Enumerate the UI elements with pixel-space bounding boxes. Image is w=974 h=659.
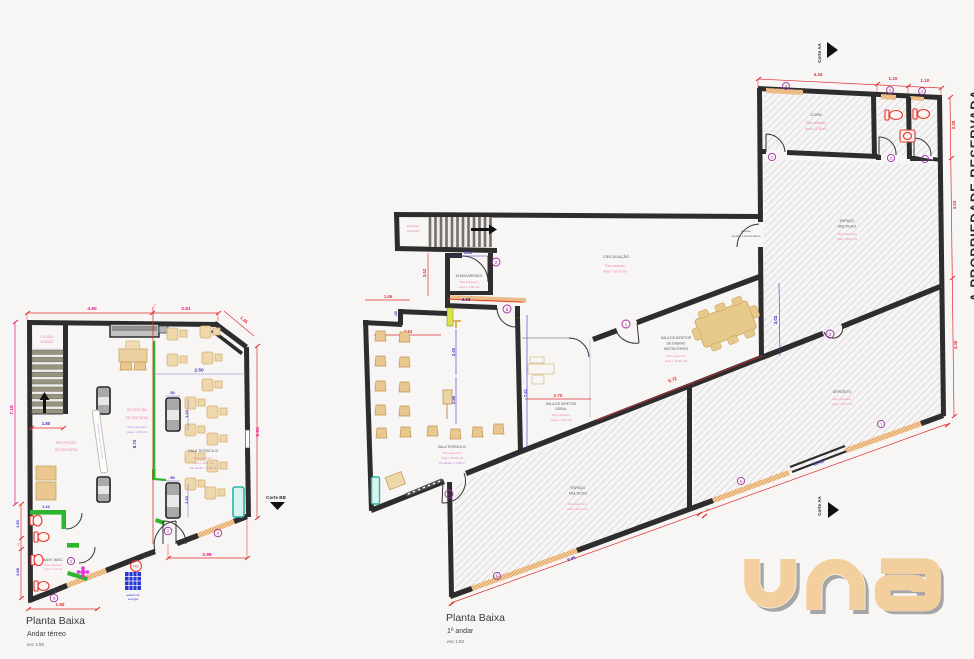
svg-text:.50: .50	[169, 475, 175, 480]
svg-text:CIRCULAÇÃO: CIRCULAÇÃO	[603, 254, 629, 259]
svg-text:Piso ceramico: Piso ceramico	[605, 264, 625, 268]
svg-text:2.36: 2.36	[951, 120, 956, 129]
svg-text:Pe direito = 2.80 m: Pe direito = 2.80 m	[190, 466, 216, 470]
svg-text:MULTIUSO: MULTIUSO	[569, 492, 588, 496]
svg-text:Area = 14.80 m2: Area = 14.80 m2	[665, 359, 688, 363]
svg-text:Piso ceramico: Piso ceramico	[568, 502, 587, 506]
svg-text:Area = 52.3 m2: Area = 52.3 m2	[567, 507, 588, 511]
svg-text:1.80: 1.80	[42, 421, 51, 426]
svg-text:RECEPÇÃO: RECEPÇÃO	[127, 407, 147, 412]
svg-text:Planta Baixa: Planta Baixa	[446, 612, 505, 624]
svg-text:energia: energia	[128, 597, 138, 601]
svg-text:Pe direito = 2.80 m: Pe direito = 2.80 m	[439, 461, 465, 465]
svg-text:4.33: 4.33	[814, 72, 823, 77]
svg-text:A PROPRIEDADE RESERVADA: A PROPRIEDADE RESERVADA	[968, 89, 974, 302]
svg-text:MULTIUSO: MULTIUSO	[838, 225, 857, 229]
svg-text:SALA TEÓRICA IV: SALA TEÓRICA IV	[438, 444, 467, 449]
svg-text:Piso ceramico: Piso ceramico	[838, 232, 857, 236]
svg-text:7.18: 7.18	[9, 405, 15, 415]
svg-text:Area = 30.2 m2: Area = 30.2 m2	[193, 461, 214, 465]
svg-text:Area = 26.60 m2: Area = 26.60 m2	[441, 456, 464, 460]
svg-text:RECEPÇÃO: RECEPÇÃO	[56, 440, 76, 445]
svg-text:3.03: 3.03	[952, 200, 957, 209]
svg-text:4.90: 4.90	[87, 306, 97, 312]
svg-text:Area = 48.6 m2: Area = 48.6 m2	[127, 430, 148, 434]
svg-text:1.40: 1.40	[464, 250, 473, 255]
svg-text:7.41: 7.41	[523, 388, 528, 397]
svg-text:.28: .28	[393, 310, 398, 316]
svg-text:Area = 48.6 m2: Area = 48.6 m2	[837, 237, 858, 241]
svg-text:1º andar: 1º andar	[447, 628, 474, 635]
svg-text:restrito a funcionarios: restrito a funcionarios	[732, 234, 761, 238]
svg-text:4.46: 4.46	[953, 340, 958, 349]
svg-text:1.20: 1.20	[184, 409, 189, 418]
svg-text:ACESSO: ACESSO	[407, 229, 420, 233]
svg-text:2.50: 2.50	[194, 368, 204, 374]
svg-text:Piso ceramico: Piso ceramico	[806, 121, 826, 125]
svg-text:esc 1:50: esc 1:50	[447, 639, 465, 644]
svg-text:ESCADA: ESCADA	[40, 335, 54, 339]
svg-text:Piso ceramico: Piso ceramico	[552, 413, 571, 417]
svg-text:2.51: 2.51	[181, 306, 191, 312]
svg-text:Area = 32.10 m2: Area = 32.10 m2	[603, 270, 627, 274]
svg-text:8.72: 8.72	[132, 439, 137, 448]
svg-text:Piso ceramico: Piso ceramico	[194, 456, 213, 460]
svg-text:ALMOXARIFADO: ALMOXARIFADO	[456, 274, 483, 278]
svg-text:2.40: 2.40	[451, 347, 456, 356]
svg-text:9: 9	[889, 89, 891, 93]
svg-text:1.20: 1.20	[42, 505, 49, 509]
svg-text:BANH. MASC: BANH. MASC	[43, 558, 64, 562]
svg-text:ESCADA: ESCADA	[407, 224, 419, 228]
svg-text:Corte AA: Corte AA	[817, 495, 822, 515]
svg-text:Area = 7.05 m2: Area = 7.05 m2	[551, 418, 572, 422]
svg-text:SALA DE DIRETOR: SALA DE DIRETOR	[661, 336, 692, 340]
svg-text:Area = 3.80 m2: Area = 3.80 m2	[459, 285, 480, 289]
svg-text:ESPAÇO: ESPAÇO	[840, 219, 855, 223]
svg-text:Piso ceramico: Piso ceramico	[460, 280, 479, 284]
svg-text:4.33: 4.33	[462, 297, 471, 302]
svg-text:Acesso: Acesso	[741, 229, 751, 233]
svg-text:Area = 28.4 m2: Area = 28.4 m2	[832, 402, 853, 406]
svg-text:DEPÓSITO: DEPÓSITO	[833, 389, 852, 394]
svg-text:INSTRUTORES: INSTRUTORES	[664, 347, 689, 351]
svg-text:ACESSO: ACESSO	[40, 340, 54, 344]
svg-text:Piso ceramico: Piso ceramico	[833, 397, 852, 401]
svg-text:SALA DE DIRETOR: SALA DE DIRETOR	[546, 402, 577, 406]
svg-text:Andar térreo: Andar térreo	[27, 631, 66, 638]
svg-text:Piso ceramico: Piso ceramico	[128, 425, 147, 429]
svg-text:DE ENSINO: DE ENSINO	[667, 342, 686, 346]
svg-text:1.46: 1.46	[384, 294, 393, 299]
svg-text:.50: .50	[169, 390, 175, 395]
svg-text:6.54: 6.54	[255, 427, 261, 437]
svg-text:9: 9	[785, 85, 787, 89]
svg-text:Area = 3.4 m2: Area = 3.4 m2	[44, 567, 62, 571]
svg-text:SECRETARIA: SECRETARIA	[126, 416, 149, 420]
svg-text:COPA: COPA	[810, 112, 821, 117]
svg-text:PRO: PRO	[133, 565, 140, 569]
svg-text:3.52: 3.52	[422, 268, 427, 277]
svg-text:Corte BB: Corte BB	[266, 495, 287, 500]
svg-text:2.70: 2.70	[554, 393, 563, 398]
svg-text:SECRETARIA: SECRETARIA	[55, 448, 78, 452]
svg-text:Piso ceramico: Piso ceramico	[667, 354, 686, 358]
svg-text:1.50: 1.50	[56, 602, 65, 607]
svg-text:Planta Baixa: Planta Baixa	[26, 615, 85, 627]
svg-text:.7: .7	[17, 543, 20, 547]
svg-text:2.08: 2.08	[15, 567, 20, 576]
svg-text:1.10: 1.10	[889, 76, 898, 81]
svg-text:ESPAÇO: ESPAÇO	[571, 486, 586, 490]
svg-text:esc 1:50: esc 1:50	[27, 642, 45, 647]
svg-text:1.10: 1.10	[921, 78, 930, 83]
svg-text:2.98: 2.98	[202, 552, 212, 558]
svg-text:3.02: 3.02	[773, 315, 778, 324]
svg-text:Corte AA: Corte AA	[817, 42, 822, 62]
svg-text:9: 9	[921, 90, 923, 94]
svg-text:Area = 9.35 m2: Area = 9.35 m2	[805, 127, 827, 131]
svg-text:1.93: 1.93	[15, 519, 20, 528]
svg-text:SALA TEÓRICA III: SALA TEÓRICA III	[188, 448, 218, 453]
svg-text:1.20: 1.20	[184, 495, 189, 504]
svg-text:Piso ceramico: Piso ceramico	[443, 451, 462, 455]
svg-text:GERAL: GERAL	[555, 407, 567, 411]
